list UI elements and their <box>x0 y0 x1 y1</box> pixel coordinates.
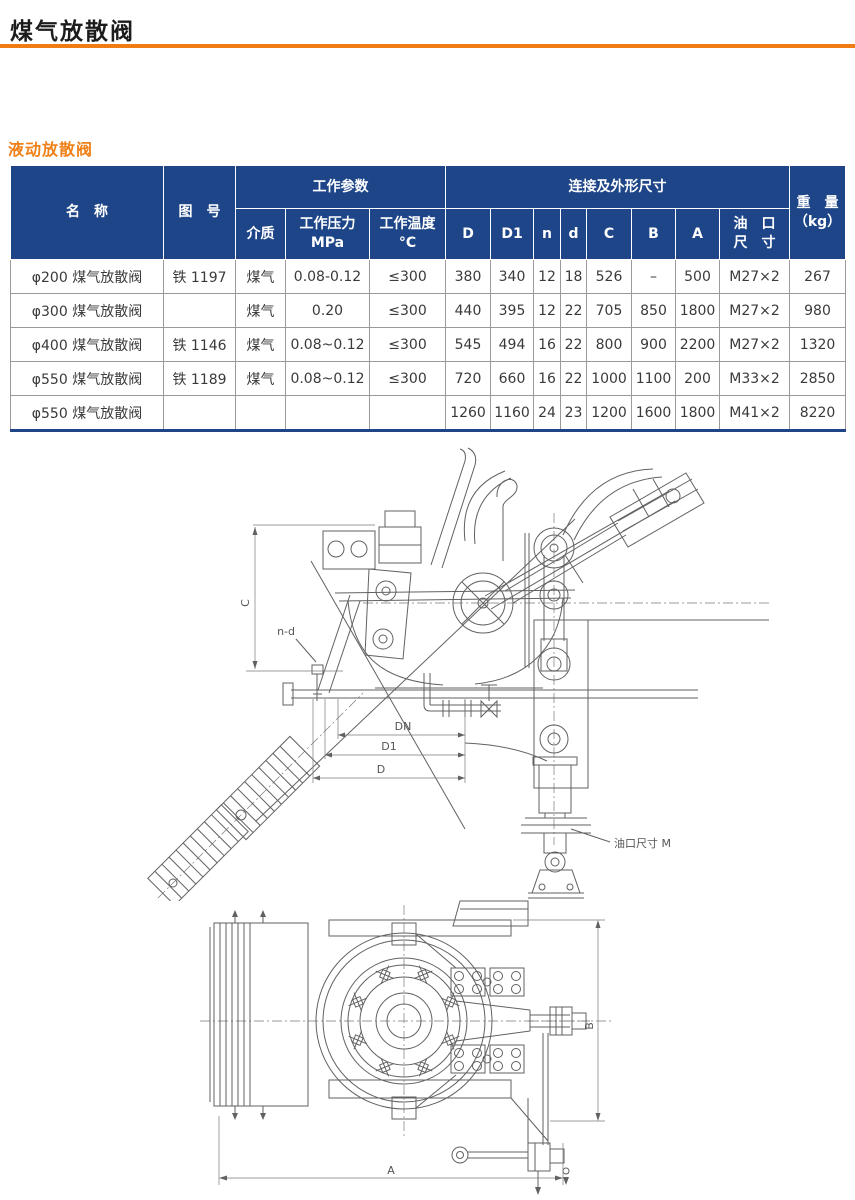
table-cell: 1800 <box>676 396 720 431</box>
table-cell: 545 <box>446 328 491 362</box>
side-view-figure: C n-d DN D1 D 油口尺寸 M <box>113 443 773 905</box>
table-cell: 500 <box>676 260 720 294</box>
table-cell: 18 <box>561 260 587 294</box>
table-cell <box>236 396 286 431</box>
col-header-oil-port: 油 口 尺 寸 <box>720 209 790 260</box>
table-cell: φ200 煤气放散阀 <box>11 260 164 294</box>
table-cell: 267 <box>790 260 846 294</box>
table-cell <box>370 396 446 431</box>
table-cell <box>164 396 236 431</box>
col-header-name: 名 称 <box>11 166 164 260</box>
table-cell: 800 <box>587 328 632 362</box>
pressure-line2: MPa <box>311 235 344 251</box>
col-header-d: d <box>561 209 587 260</box>
table-cell: 22 <box>561 294 587 328</box>
table-cell: 煤气 <box>236 294 286 328</box>
page: 煤气放散阀 液动放散阀 名 称 图 号 工作参数 连接及外形尺寸 重 量 （kg… <box>0 0 855 1200</box>
col-header-weight: 重 量 （kg） <box>790 166 846 260</box>
table-cell: φ550 煤气放散阀 <box>11 362 164 396</box>
table-cell: 1160 <box>491 396 534 431</box>
table-cell <box>286 396 370 431</box>
col-header-D: D <box>446 209 491 260</box>
title-underline <box>0 44 855 48</box>
table-cell: 22 <box>561 328 587 362</box>
plan-view-drawing: B A <box>198 893 618 1200</box>
table-cell: 0.08~0.12 <box>286 328 370 362</box>
table-row: φ400 煤气放散阀铁 1146煤气0.08~0.12≤300545494162… <box>11 328 846 362</box>
pressure-line1: 工作压力 <box>300 216 356 232</box>
table-cell: 8220 <box>790 396 846 431</box>
table-cell: ≤300 <box>370 260 446 294</box>
spec-table-body: φ200 煤气放散阀铁 1197煤气0.08-0.12≤300380340121… <box>11 260 846 431</box>
table-cell: M41×2 <box>720 396 790 431</box>
dim-label-b: B <box>583 1022 596 1030</box>
col-group-dimensions: 连接及外形尺寸 <box>446 166 790 209</box>
table-cell: 980 <box>790 294 846 328</box>
col-header-n: n <box>534 209 561 260</box>
table-cell: 1100 <box>632 362 676 396</box>
table-cell: 494 <box>491 328 534 362</box>
table-cell: 24 <box>534 396 561 431</box>
table-cell: 1600 <box>632 396 676 431</box>
table-cell: M27×2 <box>720 260 790 294</box>
table-row: φ550 煤气放散阀126011602423120016001800M41×28… <box>11 396 846 431</box>
col-header-temperature: 工作温度 °C <box>370 209 446 260</box>
dim-label-a: A <box>387 1164 395 1177</box>
table-cell: 铁 1197 <box>164 260 236 294</box>
table-cell: 705 <box>587 294 632 328</box>
col-header-pressure: 工作压力 MPa <box>286 209 370 260</box>
section-title: 液动放散阀 <box>8 136 93 160</box>
table-cell: 660 <box>491 362 534 396</box>
col-header-A: A <box>676 209 720 260</box>
table-cell: ≤300 <box>370 294 446 328</box>
col-header-D1: D1 <box>491 209 534 260</box>
table-cell: φ300 煤气放散阀 <box>11 294 164 328</box>
dim-label-c: C <box>239 599 252 607</box>
table-cell: M27×2 <box>720 294 790 328</box>
table-cell <box>164 294 236 328</box>
table-cell: 煤气 <box>236 328 286 362</box>
col-header-drawing-no: 图 号 <box>164 166 236 260</box>
dim-label-d: D <box>377 763 385 776</box>
dim-label-d1: D1 <box>381 740 396 753</box>
table-cell: 16 <box>534 328 561 362</box>
temperature-line1: 工作温度 <box>380 216 436 232</box>
table-cell: 0.08-0.12 <box>286 260 370 294</box>
table-cell: φ400 煤气放散阀 <box>11 328 164 362</box>
page-header: 煤气放散阀 <box>0 0 855 46</box>
table-cell: ≤300 <box>370 328 446 362</box>
table-cell: 440 <box>446 294 491 328</box>
table-cell: 1320 <box>790 328 846 362</box>
oil-port-line2: 尺 寸 <box>734 235 776 251</box>
table-cell: 铁 1146 <box>164 328 236 362</box>
table-cell: 380 <box>446 260 491 294</box>
col-header-medium: 介质 <box>236 209 286 260</box>
table-cell: 720 <box>446 362 491 396</box>
table-cell: M33×2 <box>720 362 790 396</box>
table-cell: 2850 <box>790 362 846 396</box>
page-title: 煤气放散阀 <box>10 12 855 46</box>
table-cell: 850 <box>632 294 676 328</box>
table-cell: 煤气 <box>236 362 286 396</box>
plan-view-figure: B A <box>198 893 618 1200</box>
col-header-C: C <box>587 209 632 260</box>
table-cell: 0.08~0.12 <box>286 362 370 396</box>
side-drawing-lines <box>148 448 769 901</box>
dim-label-dn: DN <box>395 720 412 733</box>
col-group-working-params: 工作参数 <box>236 166 446 209</box>
plan-dim-lines <box>219 920 605 1185</box>
table-cell: 16 <box>534 362 561 396</box>
table-cell: 22 <box>561 362 587 396</box>
table-row: φ200 煤气放散阀铁 1197煤气0.08-0.12≤300380340121… <box>11 260 846 294</box>
table-cell: 1200 <box>587 396 632 431</box>
temperature-line2: °C <box>399 235 416 251</box>
oil-port-line1: 油 口 <box>734 216 776 232</box>
table-cell: 12 <box>534 260 561 294</box>
table-cell: 煤气 <box>236 260 286 294</box>
col-header-B: B <box>632 209 676 260</box>
table-cell: 铁 1189 <box>164 362 236 396</box>
table-cell: ≤300 <box>370 362 446 396</box>
weight-line2: （kg） <box>794 214 841 230</box>
spec-table-head: 名 称 图 号 工作参数 连接及外形尺寸 重 量 （kg） 介质 工作压力 MP… <box>11 166 846 260</box>
table-cell: 1260 <box>446 396 491 431</box>
oil-port-label: 油口尺寸 M <box>614 836 671 850</box>
table-cell: 395 <box>491 294 534 328</box>
table-cell: 900 <box>632 328 676 362</box>
table-cell: – <box>632 260 676 294</box>
weight-line1: 重 量 <box>797 195 839 211</box>
table-cell: 23 <box>561 396 587 431</box>
side-view-drawing: C n-d DN D1 D 油口尺寸 M <box>113 443 773 901</box>
table-cell: φ550 煤气放散阀 <box>11 396 164 431</box>
table-cell: 12 <box>534 294 561 328</box>
table-row: φ300 煤气放散阀煤气0.20≤30044039512227058501800… <box>11 294 846 328</box>
table-cell: 0.20 <box>286 294 370 328</box>
table-cell: 200 <box>676 362 720 396</box>
table-cell: 526 <box>587 260 632 294</box>
table-cell: M27×2 <box>720 328 790 362</box>
table-cell: 2200 <box>676 328 720 362</box>
table-cell: 1800 <box>676 294 720 328</box>
plan-drawing-lines <box>210 901 586 1195</box>
dim-label-n-d: n-d <box>277 625 295 638</box>
spec-table: 名 称 图 号 工作参数 连接及外形尺寸 重 量 （kg） 介质 工作压力 MP… <box>10 165 846 432</box>
table-cell: 340 <box>491 260 534 294</box>
table-row: φ550 煤气放散阀铁 1189煤气0.08~0.12≤300720660162… <box>11 362 846 396</box>
table-cell: 1000 <box>587 362 632 396</box>
